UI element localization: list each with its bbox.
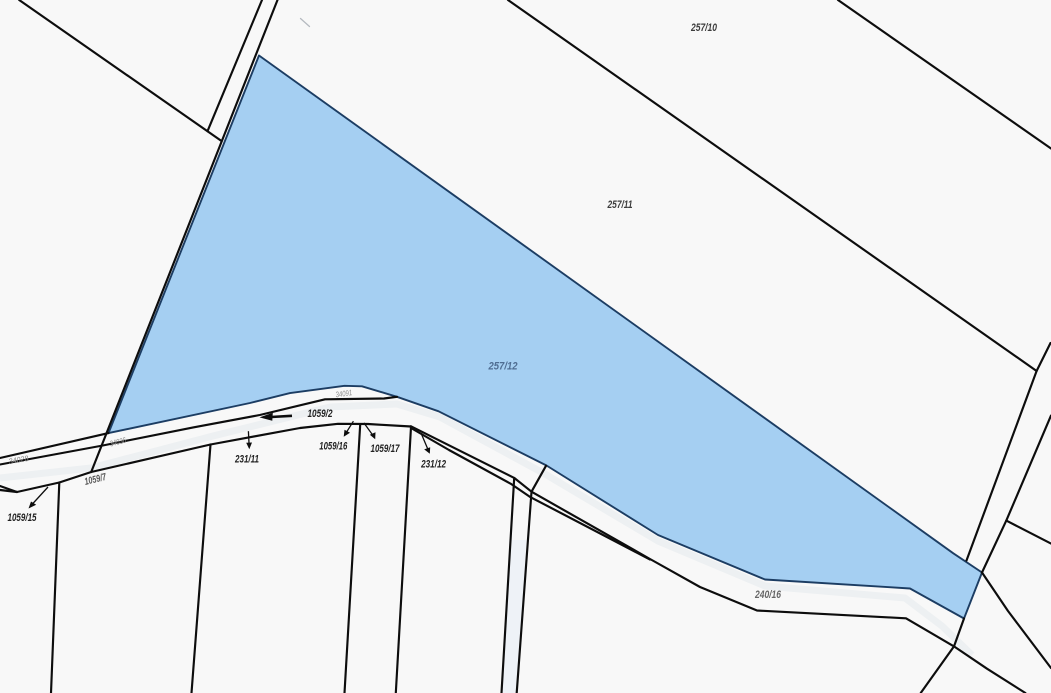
svg-text:231/11: 231/11	[234, 454, 259, 466]
svg-text:1059/2: 1059/2	[308, 408, 333, 420]
svg-text:1059/15: 1059/15	[8, 512, 38, 524]
svg-text:231/12: 231/12	[420, 458, 446, 470]
svg-text:240/16: 240/16	[754, 589, 781, 601]
svg-text:257/11: 257/11	[607, 199, 633, 211]
svg-text:1059/16: 1059/16	[319, 441, 348, 453]
svg-text:257/10: 257/10	[690, 22, 717, 34]
svg-text:257/12: 257/12	[488, 361, 518, 373]
svg-text:1059/17: 1059/17	[371, 443, 401, 455]
